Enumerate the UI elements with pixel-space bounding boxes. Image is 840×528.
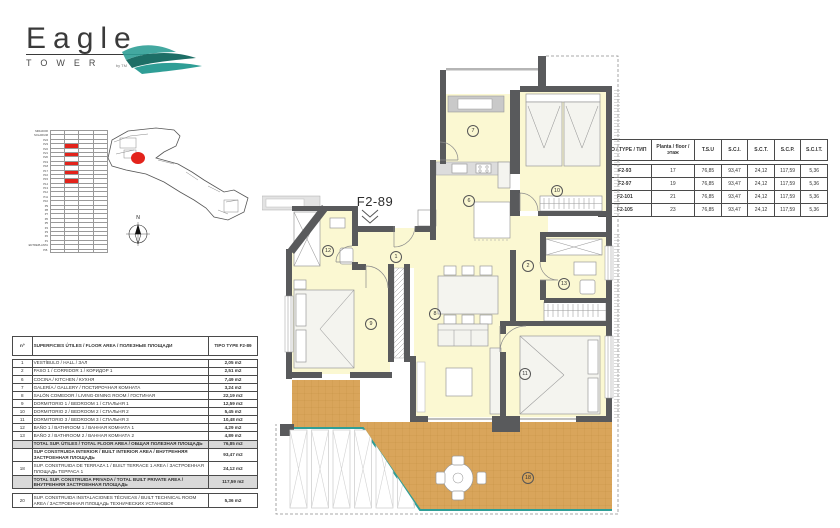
spec-table-cell: 5,36 — [801, 165, 828, 178]
spec-table-cell: 23 — [651, 204, 695, 217]
spec-header-cell: S.C.P. — [774, 140, 801, 161]
area-cell-value: 4,89 m2 — [208, 432, 257, 440]
elevation-cell — [65, 249, 79, 253]
room-number-corridor: 2 — [522, 260, 534, 272]
logo-waves-icon — [120, 38, 206, 78]
area-cell-value: 5,45 m2 — [208, 408, 257, 416]
logo: Eagle TOWER by TM — [26, 22, 206, 68]
area-cell-label: BAÑO 2 / BATHROOM 2 / ВАННАЯ КОМНАТА 2 — [32, 432, 208, 440]
area-table-row: 7GALERÍA / GALLERY / ПОСТИРОЧНАЯ КОМНАТА… — [13, 383, 258, 391]
spec-header-cell: S.C.T. — [748, 140, 775, 161]
area-cell-num: 7 — [13, 383, 33, 391]
area-cell-num: 6 — [13, 375, 33, 383]
area-cell-num: 10 — [13, 408, 33, 416]
spec-table-cell: 93,47 — [721, 204, 748, 217]
area-header-label: SUPERFICIES ÚTILES / FLOOR AREA / ПОЛЕЗН… — [32, 337, 208, 356]
spec-table-cell: 93,47 — [721, 165, 748, 178]
compass-north-label: N — [136, 215, 140, 221]
floor-plan-svg — [262, 50, 625, 522]
area-cell-num: 9 — [13, 400, 33, 408]
page: Eagle TOWER by TM MIRADORSOLARIUMP24P23P… — [0, 0, 840, 528]
area-table-row: 10DORMITORIO 2 / BEDROOM 2 / СПАЛЬНЯ 25,… — [13, 408, 258, 416]
area-cell-label: DORMITORIO 3 / BEDROOM 3 / СПАЛЬНЯ 3 — [32, 416, 208, 424]
area-table-row: SUP CONSTRUIDA INTERIOR / BUILT INTERIOR… — [13, 448, 258, 462]
area-table-body: 1VESTÍBULO / HALL / ЗАЛ2,05 m22PASO 1 / … — [13, 359, 258, 489]
spec-table-cell: 24,12 — [748, 204, 775, 217]
room-number-bath1: 12 — [322, 245, 334, 257]
area-cell-value: 24,12 m2 — [208, 462, 257, 476]
room-number-terrace: 18 — [522, 472, 534, 484]
area-cell-num — [13, 440, 33, 448]
area-table-body-table: 1VESTÍBULO / HALL / ЗАЛ2,05 m22PASO 1 / … — [12, 359, 258, 490]
area-cell-value: 2,05 m2 — [208, 359, 257, 367]
area-cell-num: 2 — [13, 367, 33, 375]
spec-table-cell: 19 — [651, 178, 695, 191]
room-number-bed3: 11 — [519, 368, 531, 380]
spec-table-cell: 24,12 — [748, 191, 775, 204]
area-cell-label: TOTAL SUP. CONSTRUIDA PRIVADA / TOTAL BU… — [32, 475, 208, 489]
area-cell-label: SALÓN COMEDOR / LIVING-DINING ROOM / ГОС… — [32, 391, 208, 399]
spec-table-cell: 5,36 — [801, 204, 828, 217]
area-table-row: 1VESTÍBULO / HALL / ЗАЛ2,05 m2 — [13, 359, 258, 367]
area-cell-label: VESTÍBULO / HALL / ЗАЛ — [32, 359, 208, 367]
room-number-bath2: 13 — [558, 278, 570, 290]
spec-table-cell: 93,47 — [721, 191, 748, 204]
spec-table-cell: 117,59 — [774, 204, 801, 217]
area-cell-value: 7,49 m2 — [208, 375, 257, 383]
area-cell-label: SUP. CONSTRUIDA DE TERRAZA 1 / BUILT TER… — [32, 462, 208, 476]
spec-table-header: TIPO / TYPE / ТИП Planta / floor / этаж … — [598, 139, 828, 161]
spec-table-cell: 93,47 — [721, 178, 748, 191]
facade-strip — [614, 232, 620, 418]
elevation-cell — [51, 249, 65, 253]
area-header-num: nº — [13, 337, 33, 356]
unit-label: F2-89 — [335, 194, 415, 209]
room-number-gallery: 7 — [467, 125, 479, 137]
spec-table-body: F2-931776,8593,4724,12117,595,36F2-97197… — [599, 165, 828, 217]
area-cell-num: 18 — [13, 462, 33, 476]
area-table-header: nº SUPERFICIES ÚTILES / FLOOR AREA / ПОЛ… — [12, 336, 258, 356]
area-cell-label: COCINA / KITCHEN / КУХНЯ — [32, 375, 208, 383]
spec-table-row: F2-1052376,8593,4724,12117,595,36 — [599, 204, 828, 217]
site-plan: N — [100, 124, 255, 261]
spec-table: TIPO / TYPE / ТИП Planta / floor / этаж … — [598, 139, 828, 217]
spec-table-cell: 76,85 — [695, 191, 722, 204]
spec-table-cell: 21 — [651, 191, 695, 204]
spec-table-row: F2-1012176,8593,4724,12117,595,36 — [599, 191, 828, 204]
spec-table-row: F2-931776,8593,4724,12117,595,36 — [599, 165, 828, 178]
area-table-row: 13BAÑO 2 / BATHROOM 2 / ВАННАЯ КОМНАТА 2… — [13, 432, 258, 440]
building-elevation: MIRADORSOLARIUMP24P23P22P21P20P19P18P17P… — [16, 130, 108, 253]
area-table-row: 6COCINA / KITCHEN / КУХНЯ7,49 m2 — [13, 375, 258, 383]
area-cell-label: DORMITORIO 2 / BEDROOM 2 / СПАЛЬНЯ 2 — [32, 408, 208, 416]
area-cell-num: 11 — [13, 416, 33, 424]
area-table-row: TOTAL SUP. ÚTILES / TOTAL FLOOR AREA / О… — [13, 440, 258, 448]
area-cell-value: 4,29 m2 — [208, 424, 257, 432]
elevation-cell — [79, 249, 93, 253]
area-cell-value: 76,85 m2 — [208, 440, 257, 448]
area-cell-value: 2,51 m2 — [208, 367, 257, 375]
area-cell-value: 117,59 m2 — [208, 475, 257, 489]
room-number-bed2: 10 — [551, 185, 563, 197]
area-table: nº SUPERFICIES ÚTILES / FLOOR AREA / ПОЛ… — [12, 336, 258, 508]
area-cell-label: TOTAL SUP. ÚTILES / TOTAL FLOOR AREA / О… — [32, 440, 208, 448]
spec-table-cell: 76,85 — [695, 204, 722, 217]
area-cell-value: 3,24 m2 — [208, 383, 257, 391]
area-cell-label: GALERÍA / GALLERY / ПОСТИРОЧНАЯ КОМНАТА — [32, 383, 208, 391]
unit-arrow-icon — [362, 210, 378, 223]
spec-table-header-row: TIPO / TYPE / ТИП Planta / floor / этаж … — [599, 140, 828, 161]
area-cell-num: 13 — [13, 432, 33, 440]
area-cell-value: 10,48 m2 — [208, 416, 257, 424]
area-table-row: 20SUP. CONSTRUIDA INSTALACIONES TÉCNICAS… — [13, 494, 258, 508]
elevation-grid: MIRADORSOLARIUMP24P23P22P21P20P19P18P17P… — [16, 130, 108, 253]
area-cell-num: 1 — [13, 359, 33, 367]
area-table-row: 8SALÓN COMEDOR / LIVING-DINING ROOM / ГО… — [13, 391, 258, 399]
area-cell-label: BAÑO 1 / BATHROOM 1 / ВАННАЯ КОМНАТА 1 — [32, 424, 208, 432]
area-cell-value: 93,47 m2 — [208, 448, 257, 462]
area-header-type: TIPO TYPE F2-89 — [208, 337, 257, 356]
site-location-marker — [131, 152, 145, 164]
area-cell-num: 20 — [13, 494, 33, 508]
site-plan-svg: N — [100, 124, 255, 256]
area-cell-label: DORMITORIO 1 / BEDROOM 1 / СПАЛЬНЯ 1 — [32, 400, 208, 408]
room-number-living: 8 — [429, 308, 441, 320]
spec-header-cell: S.C.I. — [721, 140, 748, 161]
area-cell-value: 5,36 m2 — [208, 494, 257, 508]
facade-strip — [614, 90, 620, 216]
room-number-kitchen: 6 — [463, 195, 475, 207]
area-cell-num — [13, 475, 33, 489]
area-cell-label: SUP. CONSTRUIDA INSTALACIONES TÉCNICAS /… — [32, 494, 208, 508]
area-table-row: TOTAL SUP. CONSTRUIDA PRIVADA / TOTAL BU… — [13, 475, 258, 489]
area-table-tech-body: 20SUP. CONSTRUIDA INSTALACIONES TÉCNICAS… — [13, 494, 258, 508]
area-table-header-row: nº SUPERFICIES ÚTILES / FLOOR AREA / ПОЛ… — [13, 337, 258, 356]
spec-header-cell: S.C.I.T. — [801, 140, 828, 161]
spec-header-cell: Planta / floor / этаж — [651, 140, 695, 161]
spec-table-cell: 24,12 — [748, 178, 775, 191]
area-cell-num: 12 — [13, 424, 33, 432]
area-cell-label: SUP CONSTRUIDA INTERIOR / BUILT INTERIOR… — [32, 448, 208, 462]
spec-header-cell: T.S.U — [695, 140, 722, 161]
area-cell-num: 8 — [13, 391, 33, 399]
area-cell-num — [13, 448, 33, 462]
spec-table-cell: 17 — [651, 165, 695, 178]
floor-plan: F2-89 1 2 6 7 8 9 10 11 12 13 18 — [262, 50, 625, 522]
spec-table-cell: 117,59 — [774, 165, 801, 178]
room-number-hall: 1 — [390, 251, 402, 263]
spec-table-body-table: F2-931776,8593,4724,12117,595,36F2-97197… — [598, 164, 828, 217]
spec-table-cell: 5,36 — [801, 191, 828, 204]
spec-table-cell: 5,36 — [801, 178, 828, 191]
spec-table-cell: 117,59 — [774, 191, 801, 204]
area-table-row: 11DORMITORIO 3 / BEDROOM 3 / СПАЛЬНЯ 310… — [13, 416, 258, 424]
spec-table-cell: 76,85 — [695, 178, 722, 191]
elevation-floor-row: P.B. — [16, 249, 108, 253]
area-table-tech-table: 20SUP. CONSTRUIDA INSTALACIONES TÉCNICAS… — [12, 493, 258, 508]
area-table-row: 18SUP. CONSTRUIDA DE TERRAZA 1 / BUILT T… — [13, 462, 258, 476]
spec-table-cell: 76,85 — [695, 165, 722, 178]
area-cell-value: 12,59 m2 — [208, 400, 257, 408]
spec-table-row: F2-971976,8593,4724,12117,595,36 — [599, 178, 828, 191]
area-cell-label: PASO 1 / CORRIDOR 1 / КОРИДОР 1 — [32, 367, 208, 375]
spec-table-cell: 117,59 — [774, 178, 801, 191]
area-table-row: 2PASO 1 / CORRIDOR 1 / КОРИДОР 12,51 m2 — [13, 367, 258, 375]
area-table-row: 12BAÑO 1 / BATHROOM 1 / ВАННАЯ КОМНАТА 1… — [13, 424, 258, 432]
room-number-bed1: 9 — [365, 318, 377, 330]
area-table-row: 9DORMITORIO 1 / BEDROOM 1 / СПАЛЬНЯ 112,… — [13, 400, 258, 408]
area-cell-value: 22,19 m2 — [208, 391, 257, 399]
elevation-floor-label: P.B. — [16, 249, 50, 253]
spec-table-cell: 24,12 — [748, 165, 775, 178]
compass-icon: N — [126, 215, 150, 246]
logo-subtitle-text: TOWER — [26, 58, 104, 68]
